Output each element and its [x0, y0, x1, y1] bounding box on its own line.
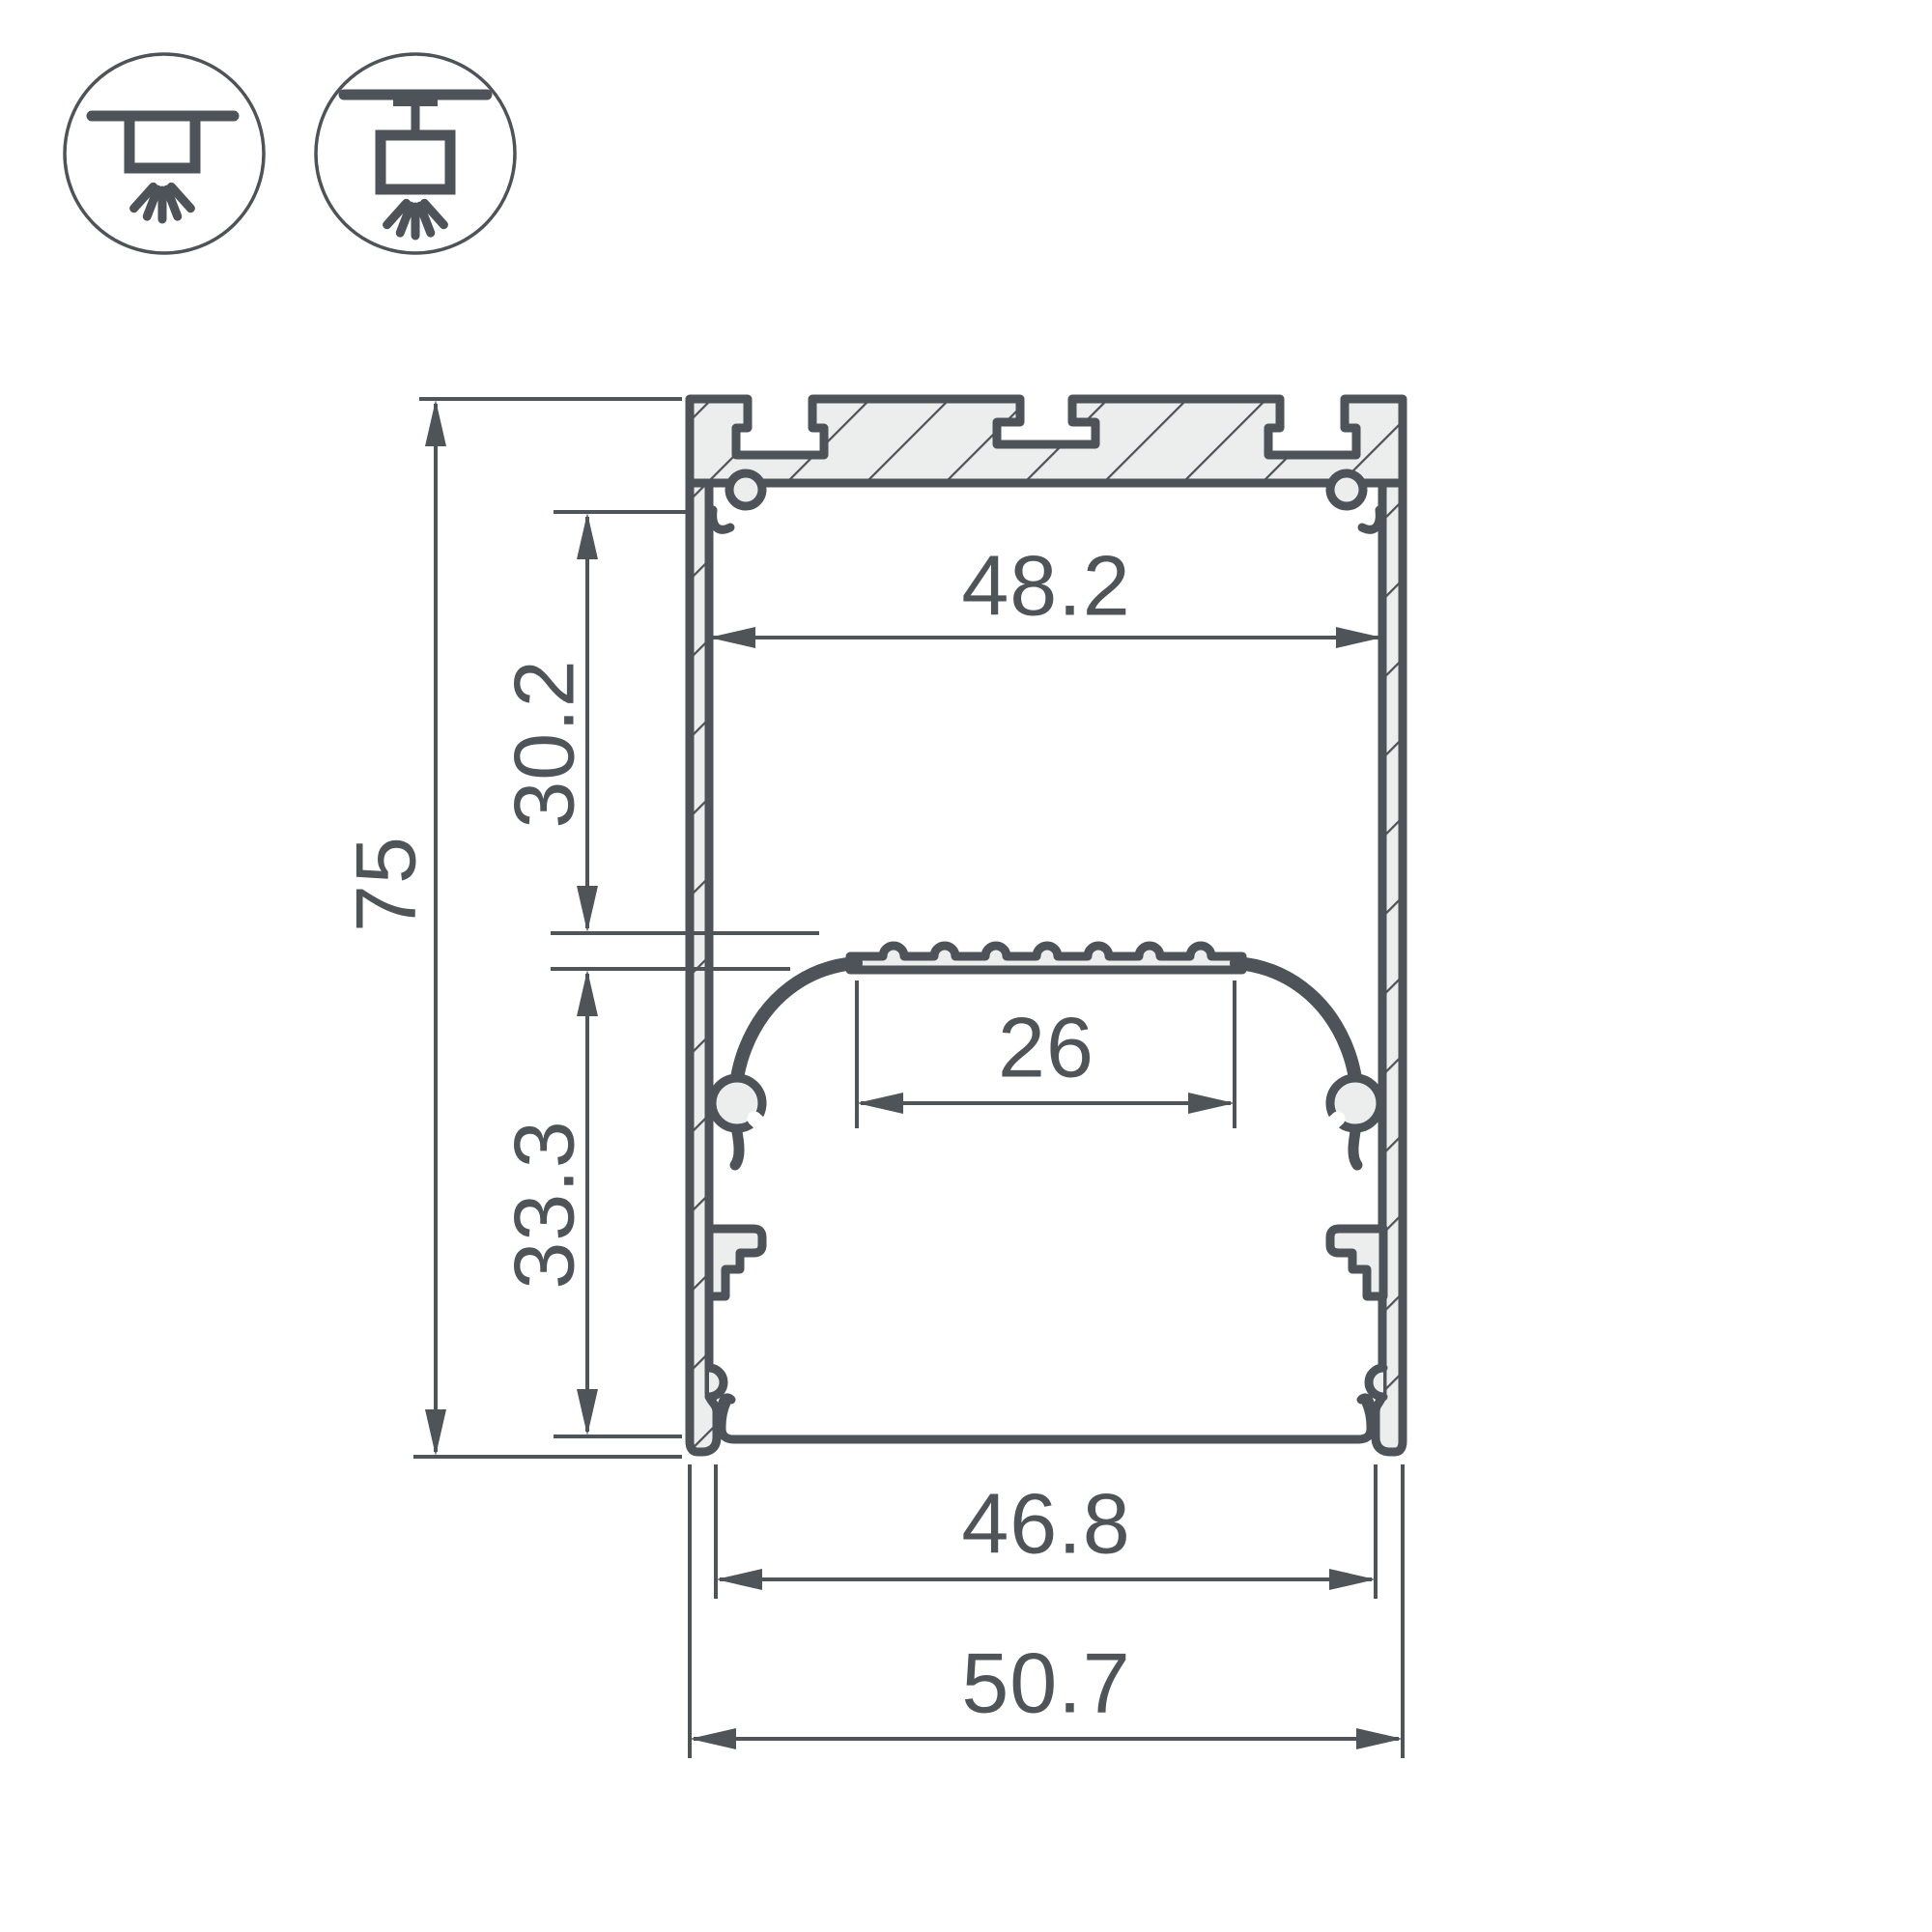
dimension-46-8: [716, 1569, 1376, 1590]
right-lower-hook: [1330, 1229, 1383, 1296]
profile-drawing-svg: 48.2 26 46.8 50.7 75 30.2 33.3: [0, 0, 1932, 1932]
dimension-50-7: [690, 1728, 1403, 1749]
fixture-box: [381, 135, 450, 189]
label-lower-chamber-height: 33.3: [497, 1120, 592, 1289]
surface-mount-icon: [65, 54, 264, 253]
right-wall: [1376, 446, 1403, 1452]
left-lower-hook: [709, 1229, 762, 1296]
label-upper-inner-width: 48.2: [961, 538, 1130, 634]
diffuser: [722, 1398, 1371, 1439]
dimension-lines: [413, 399, 1403, 1758]
extension-lines: [413, 399, 1403, 1758]
top-wall: [690, 399, 1403, 483]
icon-circle: [65, 54, 264, 253]
right-boss-notch: [1324, 1119, 1338, 1131]
left-boss-notch: [754, 1119, 768, 1131]
light-rays: [134, 186, 191, 219]
pendant-mount-icon: [316, 54, 515, 253]
left-wall: [690, 446, 717, 1452]
label-overall-height: 75: [338, 836, 434, 932]
label-overall-width: 50.7: [961, 1635, 1130, 1731]
left-wall-bump: [709, 1368, 724, 1397]
right-wall-bump: [1369, 1368, 1383, 1397]
light-rays: [387, 203, 444, 236]
led-shelf-plate: [850, 946, 1242, 970]
fixture-box: [129, 116, 195, 168]
label-upper-chamber-height: 30.2: [497, 659, 592, 828]
label-led-shelf-width: 26: [998, 1000, 1094, 1095]
dimension-26: [857, 1093, 1235, 1114]
label-bottom-opening-width: 46.8: [961, 1476, 1130, 1572]
technical-drawing-page: 48.2 26 46.8 50.7 75 30.2 33.3: [0, 0, 1932, 1932]
